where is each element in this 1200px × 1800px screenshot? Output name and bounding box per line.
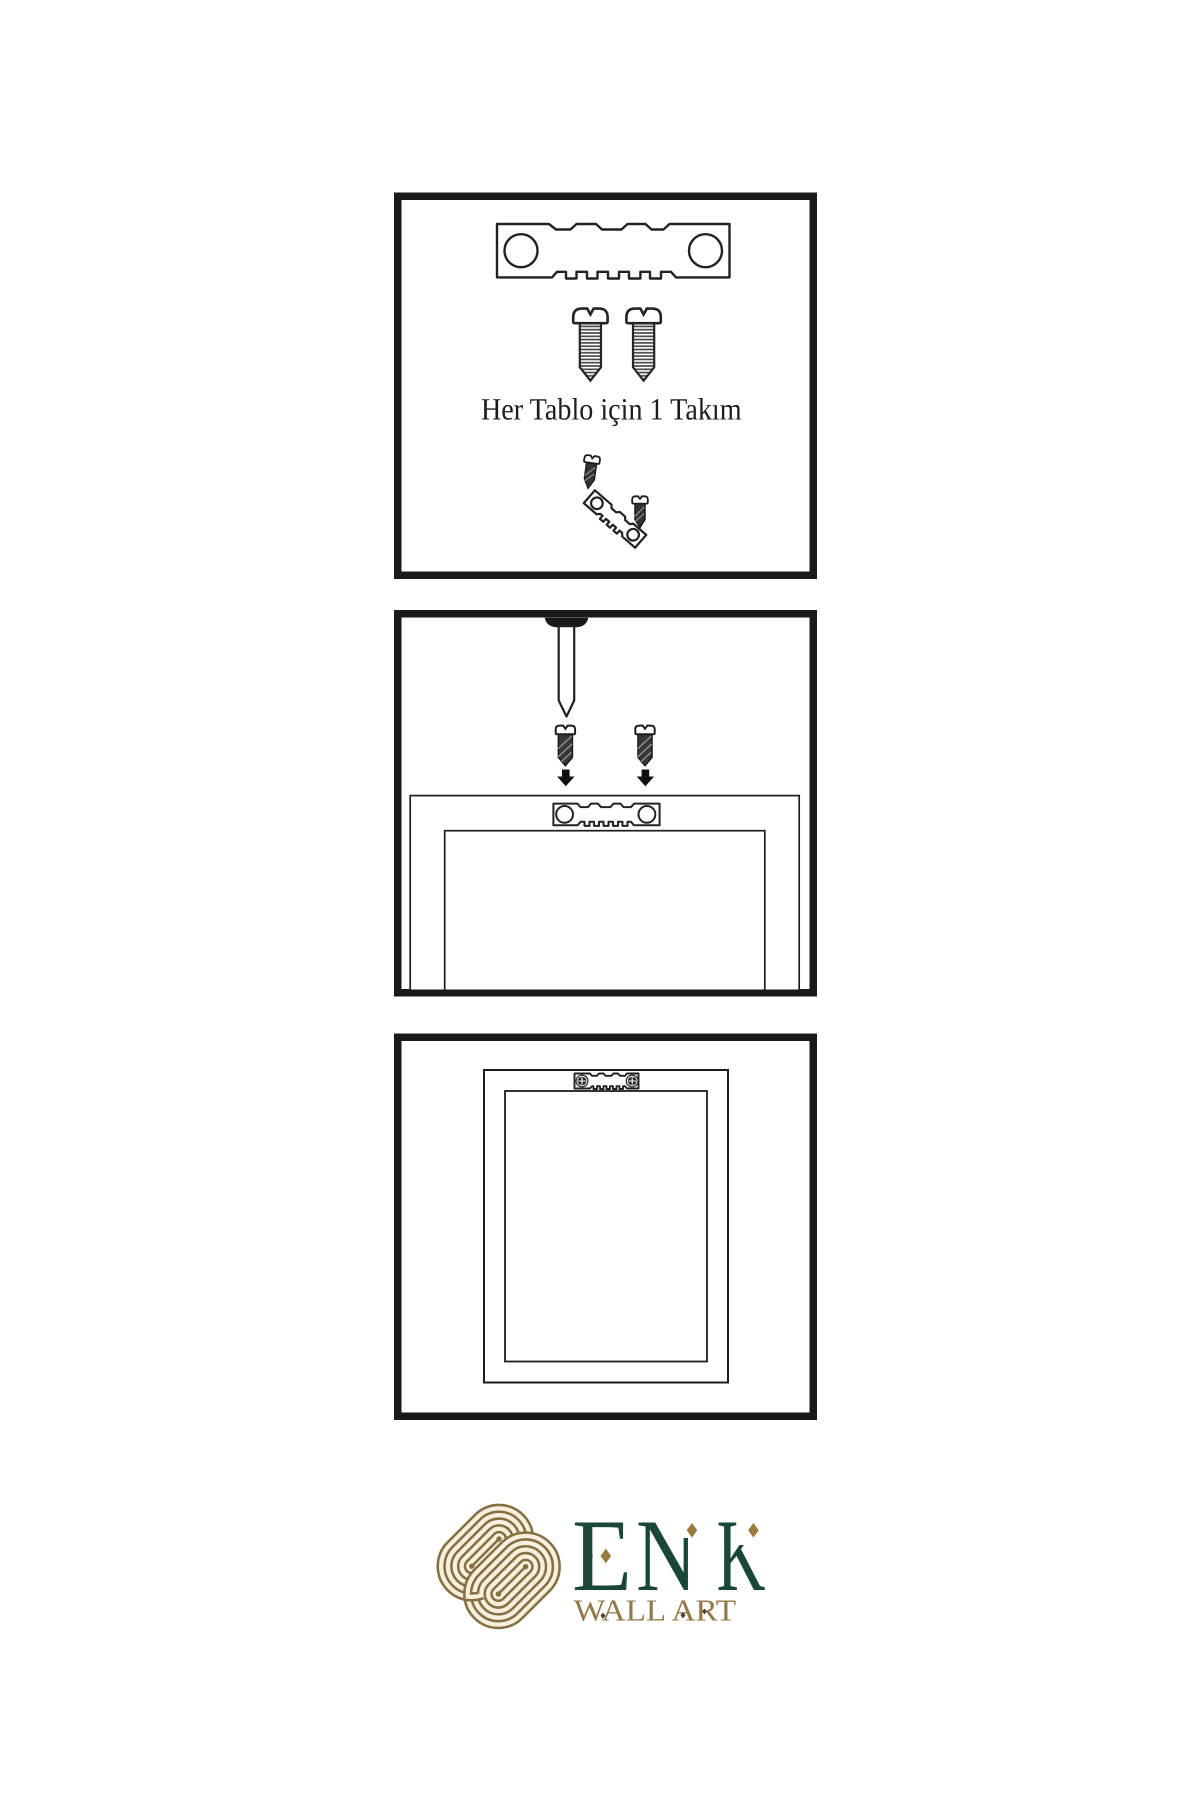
svg-text:WALL ART: WALL ART: [574, 1593, 737, 1627]
svg-text:Her Tablo için 1 Takım: Her Tablo için 1 Takım: [481, 392, 742, 427]
